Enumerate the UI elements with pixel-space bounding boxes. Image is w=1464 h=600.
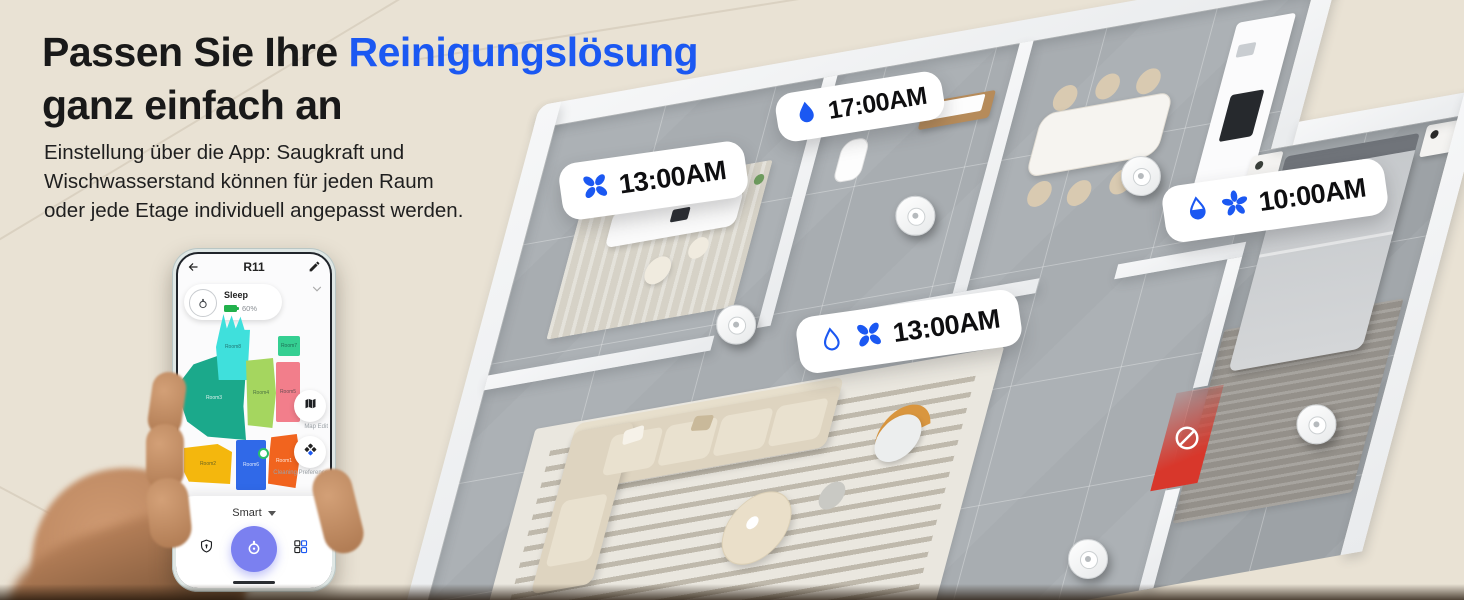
map-room[interactable]: Room2 <box>184 444 232 484</box>
map-edit-label: Map Edit <box>280 424 328 430</box>
schedule-time: 17:00AM <box>826 82 929 126</box>
collapse-chevron-icon[interactable] <box>310 282 324 301</box>
fan-icon <box>852 318 887 357</box>
water-drop-icon <box>791 98 822 133</box>
robot-vacuum-bathroom <box>895 196 935 236</box>
map-room-label: Room7 <box>281 343 297 349</box>
battery-percent: 60% <box>242 304 257 313</box>
headline-highlight: Reinigungslösung <box>349 29 699 75</box>
map-room-label: Room6 <box>243 462 259 468</box>
map-room-label: Room8 <box>225 344 241 350</box>
phone-screen: R11 Sleep 60% Room3 Room8 <box>176 252 332 588</box>
schedule-time: 13:00AM <box>617 155 728 201</box>
robot-position-dot <box>258 448 269 459</box>
battery-icon-tip <box>237 307 239 310</box>
map-room[interactable]: Room7 <box>278 336 300 356</box>
fan-icon <box>1218 187 1253 226</box>
water-drop-outline-icon <box>816 324 848 361</box>
subtext-line: oder jede Etage individuell angepasst we… <box>44 196 463 225</box>
robot-vacuum-office <box>716 305 756 345</box>
stage: Passen Sie Ihre Reinigungslösung ganz ei… <box>0 0 1464 600</box>
start-cleaning-button[interactable] <box>231 526 277 572</box>
headline-prefix: Passen Sie Ihre <box>42 29 349 75</box>
phone: R11 Sleep 60% Room3 Room8 <box>172 248 336 592</box>
prohibition-icon <box>1172 423 1202 453</box>
map-room-label: Room4 <box>253 390 269 396</box>
bottom-shadow <box>0 584 1464 600</box>
headline-line2: ganz einfach an <box>42 82 342 128</box>
robot-vacuum-kitchen <box>1121 156 1161 196</box>
map-room-label: Room2 <box>200 461 216 467</box>
schedule-time: 13:00AM <box>891 303 1002 349</box>
schedule-time: 10:00AM <box>1257 172 1368 218</box>
robot-avatar-icon <box>189 289 217 317</box>
subtext-line: Wischwasserstand können für jeden Raum <box>44 167 463 196</box>
map-room-label: Room3 <box>206 395 222 401</box>
mode-value: Smart <box>232 507 261 519</box>
mode-caret-icon <box>268 511 276 516</box>
battery-icon <box>224 305 237 312</box>
edit-button[interactable] <box>308 260 322 274</box>
room-grid-button[interactable] <box>292 538 310 556</box>
cleaning-map: Room3 Room8 Room4 Room5 Room7 Room2 Room… <box>182 314 300 490</box>
map-room-label: Room5 <box>280 389 296 395</box>
subtext: Einstellung über die App: Saugkraft und … <box>44 138 463 225</box>
shield-button[interactable] <box>198 538 216 556</box>
fan-icon <box>578 169 613 208</box>
map-room[interactable]: Room1 <box>268 434 300 488</box>
water-drop-half-icon <box>1182 193 1214 230</box>
map-room-label: Room1 <box>276 458 292 464</box>
subtext-line: Einstellung über die App: Saugkraft und <box>44 138 463 167</box>
robot-vacuum-icon <box>244 537 264 562</box>
robot-status-label: Sleep <box>224 290 248 300</box>
cleaning-preference-button[interactable] <box>294 436 326 468</box>
robot-vacuum-bedroom <box>1296 404 1336 444</box>
bottom-sheet: Smart <box>176 496 332 588</box>
map-room[interactable]: Room4 <box>246 358 276 428</box>
map-room[interactable]: Room8 <box>216 314 250 380</box>
robot-vacuum-living <box>1068 539 1108 579</box>
mode-selector[interactable]: Smart <box>176 507 332 519</box>
map-edit-button[interactable] <box>294 390 326 422</box>
cleaning-preference-icon <box>303 442 318 462</box>
map-icon <box>303 396 318 416</box>
